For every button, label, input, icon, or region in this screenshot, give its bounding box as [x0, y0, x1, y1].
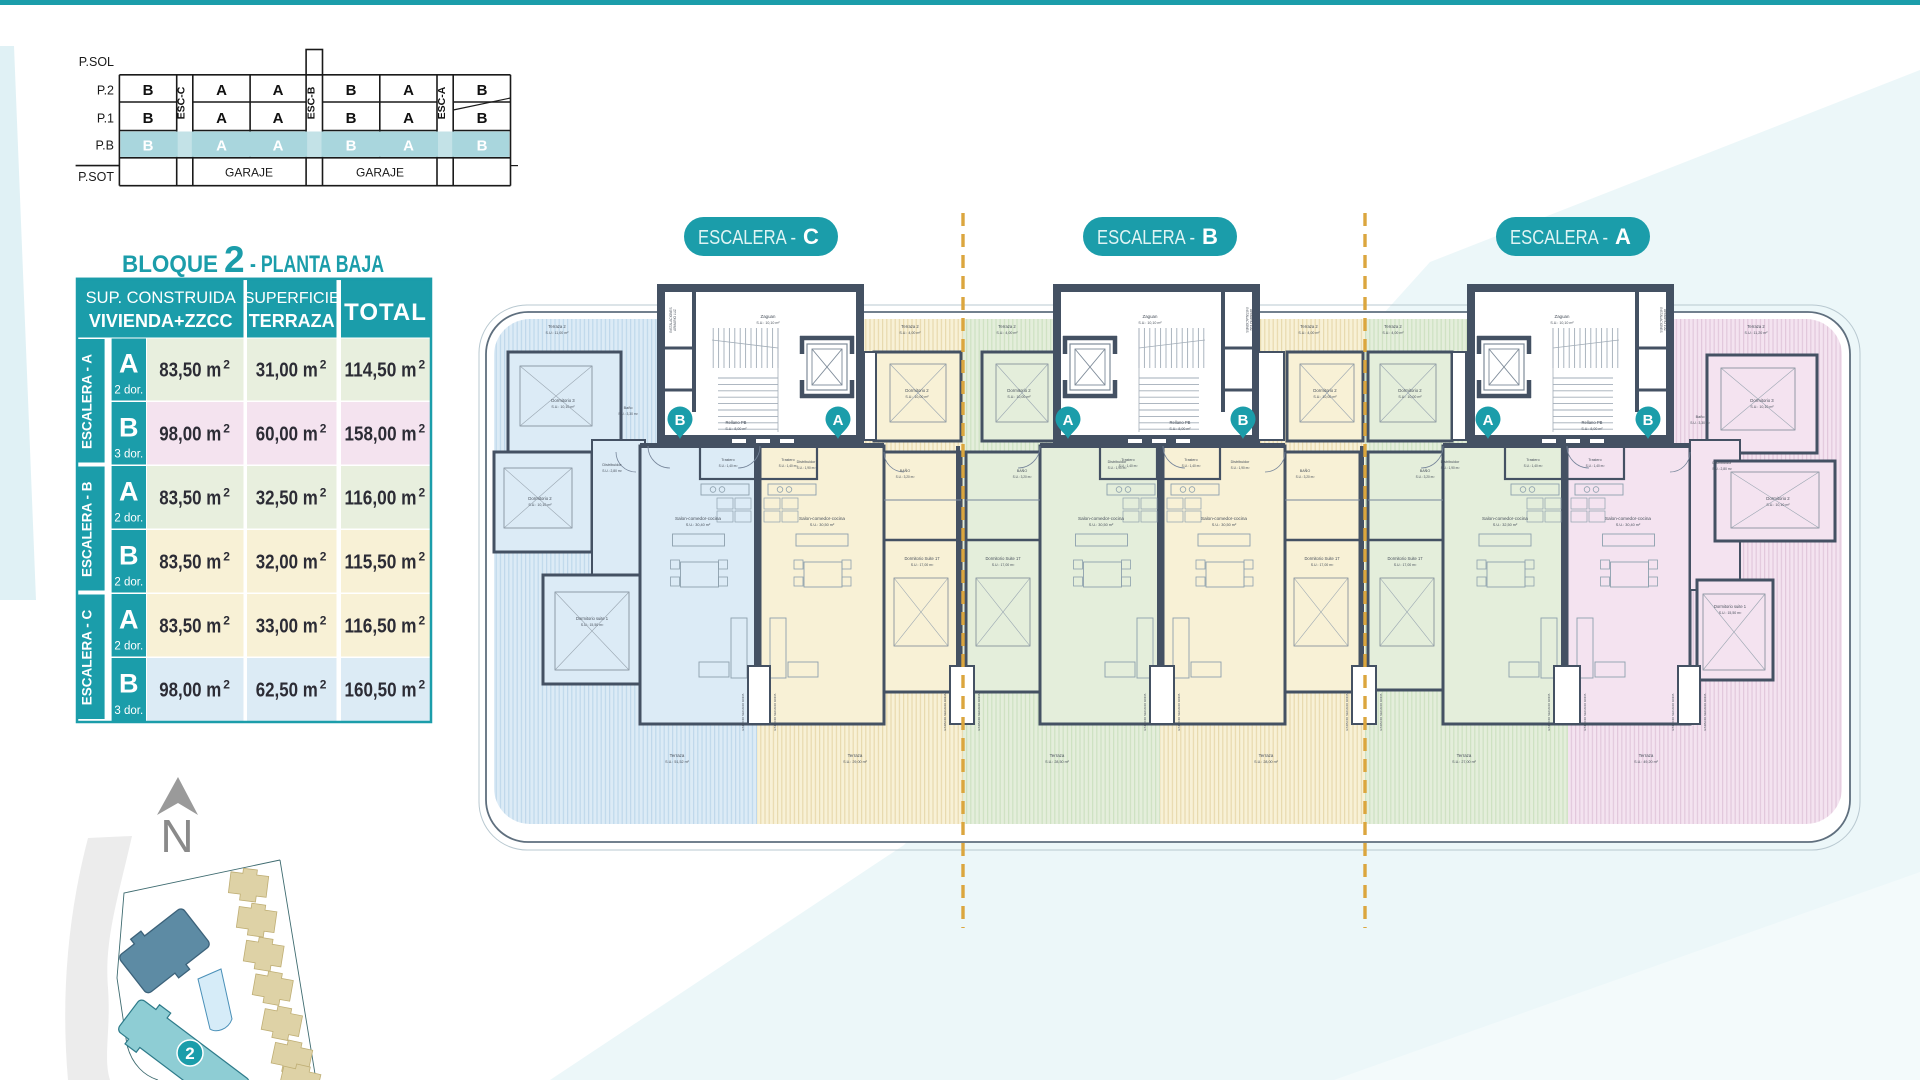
svg-text:2 dor.: 2 dor.	[114, 641, 143, 653]
svg-text:ESPACIO SECADO ROPA: ESPACIO SECADO ROPA	[977, 693, 981, 731]
svg-text:S.U.: 1,90 m²: S.U.: 1,90 m²	[1441, 466, 1460, 470]
svg-text:S.U.: 3,20 m²: S.U.: 3,20 m²	[1013, 475, 1032, 479]
svg-text:BAÑO: BAÑO	[1017, 468, 1028, 473]
svg-text:Terraza 2: Terraza 2	[1747, 324, 1765, 329]
svg-text:2: 2	[320, 613, 327, 627]
svg-text:116,50 m: 116,50 m	[345, 614, 417, 637]
svg-text:S.U.: 29,00 m²: S.U.: 29,00 m²	[843, 760, 868, 764]
svg-text:Salon-comedor-cocina: Salon-comedor-cocina	[1482, 516, 1528, 521]
svg-text:P.B: P.B	[95, 139, 114, 153]
svg-text:83,50 m: 83,50 m	[159, 614, 221, 637]
svg-text:A: A	[403, 110, 414, 127]
svg-text:Dormitorio 3: Dormitorio 3	[1750, 398, 1774, 403]
svg-text:ESCALERA -: ESCALERA -	[1097, 227, 1195, 249]
svg-text:S.U.: 10,10 m²: S.U.: 10,10 m²	[551, 405, 575, 409]
svg-text:SUPERFICIE: SUPERFICIE	[244, 290, 340, 307]
svg-text:2: 2	[419, 421, 426, 435]
svg-text:S.U.: 30,40 m²: S.U.: 30,40 m²	[1616, 523, 1641, 527]
svg-text:3 dor.: 3 dor.	[114, 449, 143, 461]
svg-text:ESPACIO SECADO ROPA: ESPACIO SECADO ROPA	[1583, 693, 1587, 731]
svg-text:98,00 m: 98,00 m	[159, 422, 221, 445]
svg-text:Terraza: Terraza	[1639, 753, 1654, 758]
svg-text:B: B	[346, 110, 357, 127]
svg-text:2 dor.: 2 dor.	[114, 385, 143, 397]
svg-text:ESPACIO SECADO ROPA: ESPACIO SECADO ROPA	[1177, 693, 1181, 731]
svg-text:S.U.: 1,40 m²: S.U.: 1,40 m²	[1586, 464, 1605, 468]
svg-text:S.U.: 15,50 m²: S.U.: 15,50 m²	[581, 623, 604, 627]
svg-text:S.U.: 32,50 m²: S.U.: 32,50 m²	[1493, 523, 1518, 527]
svg-text:Terraza: Terraza	[1259, 753, 1274, 758]
svg-text:S.U.: 11,00 m²: S.U.: 11,00 m²	[546, 331, 570, 335]
svg-text:ESPACIO SECADO ROPA: ESPACIO SECADO ROPA	[773, 693, 777, 731]
svg-text:S.U.: 4,00 m²: S.U.: 4,00 m²	[996, 331, 1018, 335]
svg-text:A: A	[403, 138, 414, 155]
svg-text:ESPACIO SECADO ROPA: ESPACIO SECADO ROPA	[1671, 693, 1675, 731]
svg-text:Dormitorio Suite 17: Dormitorio Suite 17	[904, 556, 940, 561]
svg-text:Terraza: Terraza	[1050, 753, 1065, 758]
svg-text:Terraza 2: Terraza 2	[1300, 324, 1318, 329]
svg-text:A: A	[273, 82, 284, 99]
svg-text:S.U.: 10,00 m²: S.U.: 10,00 m²	[1313, 395, 1337, 399]
svg-text:GARAJE: GARAJE	[356, 166, 404, 180]
svg-text:2: 2	[419, 358, 426, 372]
svg-text:ESPACIO SECADO ROPA: ESPACIO SECADO ROPA	[943, 693, 947, 731]
svg-text:S.U.: 10,10 m²: S.U.: 10,10 m²	[756, 321, 780, 325]
svg-text:C: C	[803, 224, 819, 249]
svg-text:Distribuidor: Distribuidor	[1108, 460, 1127, 464]
svg-text:S.U.: 17,00 m²: S.U.: 17,00 m²	[992, 563, 1015, 567]
svg-text:Trastero: Trastero	[721, 458, 734, 462]
svg-text:Distribuidor: Distribuidor	[797, 460, 816, 464]
svg-text:S.U.: 51,52 m²: S.U.: 51,52 m²	[665, 760, 690, 764]
svg-text:2 dor.: 2 dor.	[114, 513, 143, 525]
svg-text:Zaguan: Zaguan	[1555, 314, 1570, 319]
svg-text:Dormitorio 2: Dormitorio 2	[905, 388, 929, 393]
svg-text:115,50 m: 115,50 m	[345, 550, 417, 573]
svg-text:Salon-comedor-cocina: Salon-comedor-cocina	[1605, 516, 1651, 521]
svg-text:INSTALACIONES: INSTALACIONES	[1659, 307, 1663, 332]
svg-text:B: B	[143, 110, 154, 127]
svg-text:33,00 m: 33,00 m	[256, 614, 318, 637]
svg-text:S.U.: 17,00 m²: S.U.: 17,00 m²	[1311, 563, 1334, 567]
svg-text:S.U.: 15,50 m²: S.U.: 15,50 m²	[1719, 611, 1742, 615]
svg-text:B: B	[477, 110, 488, 127]
svg-text:Distribuidor: Distribuidor	[1231, 460, 1250, 464]
svg-text:2: 2	[419, 678, 426, 692]
svg-text:Terraza: Terraza	[1457, 753, 1472, 758]
svg-text:ESPACIO SECADO ROPA: ESPACIO SECADO ROPA	[1703, 693, 1707, 731]
svg-text:Dormitorio 2: Dormitorio 2	[1766, 496, 1790, 501]
svg-text:ESPACIO SECADO ROPA: ESPACIO SECADO ROPA	[1547, 693, 1551, 731]
svg-text:B: B	[477, 82, 488, 99]
svg-text:S.U.: 1,40 m²: S.U.: 1,40 m²	[719, 464, 738, 468]
svg-text:ARMARIO LUZ: ARMARIO LUZ	[1663, 309, 1667, 331]
svg-text:32,50 m: 32,50 m	[256, 486, 318, 509]
svg-text:BLOQUE: BLOQUE	[122, 251, 218, 278]
svg-text:INSTALACIONES: INSTALACIONES	[1245, 307, 1249, 332]
svg-text:Baño: Baño	[624, 406, 633, 410]
svg-text:2: 2	[419, 613, 426, 627]
svg-text:B: B	[119, 412, 139, 442]
svg-text:Rellano PB: Rellano PB	[1170, 420, 1191, 425]
svg-text:S.U.: 2,80 m²: S.U.: 2,80 m²	[1712, 467, 1732, 471]
svg-text:Dormitorio 2: Dormitorio 2	[1398, 388, 1422, 393]
svg-text:83,50 m: 83,50 m	[159, 550, 221, 573]
svg-text:A: A	[216, 138, 227, 155]
svg-text:S.U.: 10,10 m²: S.U.: 10,10 m²	[1766, 503, 1790, 507]
svg-text:S.U.: 28,00 m²: S.U.: 28,00 m²	[1254, 760, 1279, 764]
svg-text:N: N	[160, 810, 193, 862]
svg-text:Rellano PB: Rellano PB	[726, 420, 747, 425]
svg-text:S.U.: 3,20 m²: S.U.: 3,20 m²	[896, 475, 915, 479]
svg-text:60,00 m: 60,00 m	[256, 422, 318, 445]
svg-text:S.U.: 30,50 m²: S.U.: 30,50 m²	[1089, 523, 1114, 527]
svg-text:A: A	[216, 82, 227, 99]
svg-text:ESPACIO SECADO ROPA: ESPACIO SECADO ROPA	[741, 693, 745, 731]
svg-text:S.U.: 3,20 m²: S.U.: 3,20 m²	[1296, 475, 1315, 479]
svg-text:S.U.: 1,90 m²: S.U.: 1,90 m²	[1231, 466, 1250, 470]
svg-text:S.U.: 10,10 m²: S.U.: 10,10 m²	[1550, 321, 1574, 325]
svg-text:GARAJE: GARAJE	[225, 166, 273, 180]
svg-text:ARMARIO LUZ: ARMARIO LUZ	[1249, 309, 1253, 331]
svg-text:S.U.: 8,00 m²: S.U.: 8,00 m²	[1581, 427, 1603, 431]
svg-text:Terraza: Terraza	[848, 753, 863, 758]
svg-text:ESCALERA -: ESCALERA -	[698, 227, 796, 249]
svg-text:A: A	[1615, 224, 1631, 249]
svg-text:B: B	[346, 138, 357, 155]
svg-text:S.U.: 28,50 m²: S.U.: 28,50 m²	[1045, 760, 1070, 764]
svg-text:S.U.: 30,40 m²: S.U.: 30,40 m²	[686, 523, 711, 527]
svg-text:SUP. CONSTRUIDA: SUP. CONSTRUIDA	[86, 289, 236, 307]
svg-text:Dormitorio 3: Dormitorio 3	[551, 398, 575, 403]
svg-text:P.1: P.1	[97, 112, 114, 126]
svg-text:2: 2	[223, 421, 230, 435]
svg-text:2: 2	[223, 358, 230, 372]
svg-text:Dormitorio Suite 17: Dormitorio Suite 17	[1304, 556, 1340, 561]
svg-text:S.U.: 17,00 m²: S.U.: 17,00 m²	[911, 563, 934, 567]
svg-text:Salon-comedor-cocina: Salon-comedor-cocina	[1078, 516, 1124, 521]
svg-text:ESPACIO SECADO ROPA: ESPACIO SECADO ROPA	[1143, 693, 1147, 731]
svg-text:Trastero: Trastero	[1184, 458, 1197, 462]
svg-text:S.U.: 1,40 m²: S.U.: 1,40 m²	[1182, 464, 1201, 468]
svg-text:Baño: Baño	[1696, 415, 1705, 419]
svg-text:S.U.: 10,00 m²: S.U.: 10,00 m²	[1398, 395, 1422, 399]
svg-text:S.U.: 10,10 m²: S.U.: 10,10 m²	[528, 503, 552, 507]
svg-text:32,00 m: 32,00 m	[256, 550, 318, 573]
svg-text:2: 2	[224, 239, 245, 280]
svg-text:114,50 m: 114,50 m	[345, 359, 417, 382]
svg-text:S.U.: 1,40 m²: S.U.: 1,40 m²	[779, 464, 798, 468]
svg-text:3 dor.: 3 dor.	[114, 705, 143, 717]
svg-text:Rellano PB: Rellano PB	[1582, 420, 1603, 425]
svg-text:B: B	[346, 82, 357, 99]
svg-text:A: A	[119, 349, 139, 379]
svg-text:B: B	[1202, 224, 1218, 249]
svg-text:ESC-A: ESC-A	[436, 86, 448, 119]
svg-text:2: 2	[223, 678, 230, 692]
svg-text:Distribuidor: Distribuidor	[1712, 461, 1732, 465]
svg-text:Terraza 2: Terraza 2	[1384, 324, 1402, 329]
svg-text:P.2: P.2	[97, 84, 114, 98]
svg-text:P.SOL: P.SOL	[79, 55, 114, 69]
svg-text:S.U.: 10,10 m²: S.U.: 10,10 m²	[1750, 405, 1774, 409]
svg-text:TOTAL: TOTAL	[344, 299, 427, 326]
svg-text:S.U.: 4,00 m²: S.U.: 4,00 m²	[1382, 331, 1404, 335]
svg-text:ESCALERA -: ESCALERA -	[1510, 227, 1608, 249]
svg-text:160,50 m: 160,50 m	[345, 679, 417, 702]
svg-text:Distribuidor: Distribuidor	[602, 463, 622, 467]
svg-text:- PLANTA BAJA: - PLANTA BAJA	[250, 251, 384, 278]
svg-text:31,00 m: 31,00 m	[256, 359, 318, 382]
svg-text:S.U.: 4,00 m²: S.U.: 4,00 m²	[1298, 331, 1320, 335]
svg-text:Dormitorio Suite 17: Dormitorio Suite 17	[985, 556, 1021, 561]
svg-text:B: B	[143, 82, 154, 99]
svg-text:2: 2	[320, 358, 327, 372]
svg-text:S.U.: 10,00 m²: S.U.: 10,00 m²	[1007, 395, 1031, 399]
svg-text:S.U.: 1,40 m²: S.U.: 1,40 m²	[1524, 464, 1543, 468]
svg-text:Zaguan: Zaguan	[761, 314, 776, 319]
svg-text:S.U.: 10,00 m²: S.U.: 10,00 m²	[905, 395, 929, 399]
svg-text:62,50 m: 62,50 m	[256, 679, 318, 702]
svg-text:S.U.: 1,90 m²: S.U.: 1,90 m²	[1108, 466, 1127, 470]
svg-text:A: A	[403, 82, 414, 99]
svg-text:2: 2	[419, 549, 426, 563]
svg-text:ARMARIO LUZ: ARMARIO LUZ	[673, 309, 677, 331]
svg-text:BAÑO: BAÑO	[1420, 468, 1431, 473]
svg-text:S.U.: 30,50 m²: S.U.: 30,50 m²	[1212, 523, 1237, 527]
svg-text:Distribuidor: Distribuidor	[1441, 460, 1460, 464]
svg-text:S.U.: 3,20 m²: S.U.: 3,20 m²	[1416, 475, 1435, 479]
svg-text:Terraza 2: Terraza 2	[548, 324, 566, 329]
svg-text:2: 2	[320, 421, 327, 435]
svg-text:Dormitorio 2: Dormitorio 2	[528, 496, 552, 501]
svg-text:ESC-C: ESC-C	[176, 86, 188, 119]
svg-text:B: B	[1238, 412, 1249, 429]
svg-text:S.U.: 17,00 m²: S.U.: 17,00 m²	[1394, 563, 1417, 567]
svg-text:A: A	[119, 476, 139, 506]
svg-text:116,00 m: 116,00 m	[345, 486, 417, 509]
svg-text:B: B	[119, 669, 139, 699]
svg-text:S.U.: 3,30 m²: S.U.: 3,30 m²	[1690, 421, 1710, 425]
svg-text:83,50 m: 83,50 m	[159, 486, 221, 509]
svg-text:2: 2	[419, 485, 426, 499]
svg-text:ESCALERA - B: ESCALERA - B	[80, 481, 95, 577]
svg-text:2: 2	[223, 613, 230, 627]
svg-text:Dormitorio suite 1: Dormitorio suite 1	[1714, 604, 1747, 609]
svg-text:A: A	[216, 110, 227, 127]
svg-text:S.U.: 2,80 m²: S.U.: 2,80 m²	[602, 469, 622, 473]
svg-text:ESCALERA - C: ESCALERA - C	[80, 610, 95, 706]
svg-text:A: A	[273, 110, 284, 127]
svg-text:A: A	[1483, 412, 1494, 429]
svg-text:TERRAZA: TERRAZA	[249, 311, 335, 331]
svg-text:P.SOT: P.SOT	[78, 170, 114, 184]
svg-text:Zaguan: Zaguan	[1143, 314, 1158, 319]
svg-text:ESCALERA - A: ESCALERA - A	[80, 354, 95, 449]
svg-text:BAÑO: BAÑO	[900, 468, 911, 473]
svg-text:Trastero: Trastero	[1588, 458, 1601, 462]
svg-text:B: B	[143, 138, 154, 155]
svg-text:Salon-comedor-cocina: Salon-comedor-cocina	[675, 516, 721, 521]
svg-text:ESC-B: ESC-B	[305, 86, 317, 119]
svg-text:B: B	[119, 540, 139, 570]
svg-text:Dormitorio 2: Dormitorio 2	[1007, 388, 1031, 393]
svg-text:A: A	[273, 138, 284, 155]
svg-text:Terraza 2: Terraza 2	[901, 324, 919, 329]
svg-text:Trastero: Trastero	[1526, 458, 1539, 462]
svg-text:A: A	[833, 412, 844, 429]
svg-text:S.U.: 30,50 m²: S.U.: 30,50 m²	[810, 523, 835, 527]
svg-text:S.U.: 8,00 m²: S.U.: 8,00 m²	[725, 427, 747, 431]
svg-text:2: 2	[320, 485, 327, 499]
svg-text:Dormitorio Suite 17: Dormitorio Suite 17	[1387, 556, 1423, 561]
svg-text:Terraza 2: Terraza 2	[998, 324, 1016, 329]
svg-text:S.U.: 10,10 m²: S.U.: 10,10 m²	[1138, 321, 1162, 325]
svg-text:S.U.: 1,90 m²: S.U.: 1,90 m²	[797, 466, 816, 470]
svg-text:2: 2	[223, 485, 230, 499]
svg-text:2: 2	[320, 678, 327, 692]
svg-text:ESPACIO SECADO ROPA: ESPACIO SECADO ROPA	[1345, 693, 1349, 731]
svg-text:2: 2	[185, 1044, 194, 1063]
svg-text:Trastero: Trastero	[781, 458, 794, 462]
svg-text:S.U.: 3,30 m²: S.U.: 3,30 m²	[618, 412, 638, 416]
svg-text:B: B	[675, 412, 686, 429]
svg-text:2 dor.: 2 dor.	[114, 577, 143, 589]
svg-text:Terraza: Terraza	[670, 753, 685, 758]
svg-text:S.U.: 4,00 m²: S.U.: 4,00 m²	[899, 331, 921, 335]
svg-text:S.U.: 8,00 m²: S.U.: 8,00 m²	[1169, 427, 1191, 431]
svg-text:S.U.: 11,20 m²: S.U.: 11,20 m²	[1745, 331, 1769, 335]
svg-text:A: A	[1063, 412, 1074, 429]
svg-text:98,00 m: 98,00 m	[159, 679, 221, 702]
svg-text:A: A	[119, 604, 139, 634]
svg-text:ESPACIO SECADO ROPA: ESPACIO SECADO ROPA	[1379, 693, 1383, 731]
svg-text:VIVIENDA+ZZCC: VIVIENDA+ZZCC	[89, 311, 233, 331]
svg-text:BAÑO: BAÑO	[1300, 468, 1311, 473]
svg-text:Salon-comedor-cocina: Salon-comedor-cocina	[799, 516, 845, 521]
svg-text:2: 2	[320, 549, 327, 563]
svg-text:B: B	[1643, 412, 1654, 429]
svg-text:B: B	[477, 138, 488, 155]
svg-text:83,50 m: 83,50 m	[159, 359, 221, 382]
svg-text:158,00 m: 158,00 m	[345, 422, 417, 445]
svg-text:S.U.: 49,20 m²: S.U.: 49,20 m²	[1634, 760, 1659, 764]
svg-text:Salon-comedor-cocina: Salon-comedor-cocina	[1201, 516, 1247, 521]
svg-text:2: 2	[223, 549, 230, 563]
svg-text:Dormitorio suite 1: Dormitorio suite 1	[576, 616, 609, 621]
svg-text:S.U.: 27,00 m²: S.U.: 27,00 m²	[1452, 760, 1477, 764]
svg-text:Dormitorio 2: Dormitorio 2	[1313, 388, 1337, 393]
